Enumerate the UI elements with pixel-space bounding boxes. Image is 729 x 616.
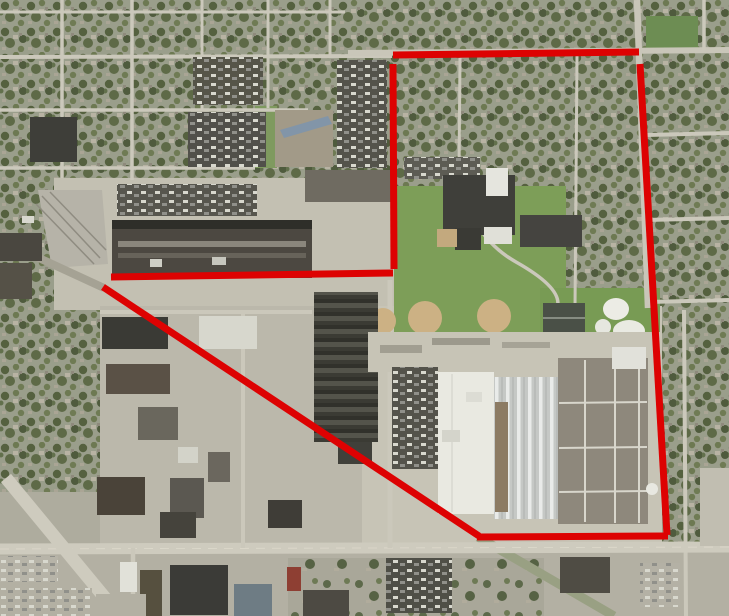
staging-clutter: [380, 345, 422, 353]
dark-building: [30, 117, 77, 162]
street: [459, 58, 460, 170]
parking-cars-texture: [0, 588, 92, 616]
white-factory-unit: [442, 430, 460, 442]
school-white-roof: [486, 168, 508, 196]
school-annex-white: [484, 227, 512, 244]
baseball-diamond: [477, 299, 511, 333]
baseball-diamond: [408, 301, 442, 335]
gray-factory-seam: [559, 491, 647, 492]
row-houses: [0, 263, 32, 299]
blue-roof-building: [234, 584, 272, 616]
street: [648, 300, 729, 302]
splash-pool: [603, 298, 629, 320]
commercial-building: [138, 407, 178, 440]
street: [684, 310, 686, 616]
red-roof-building: [287, 567, 301, 591]
parking-cars-texture: [386, 558, 452, 613]
parking-cars-texture: [337, 60, 387, 168]
parking-cars-texture: [392, 367, 438, 469]
white-canopy: [120, 562, 137, 592]
aerial-imagery: [0, 0, 729, 616]
playground: [437, 229, 457, 247]
parking-cars-texture: [640, 563, 680, 607]
row-houses: [0, 233, 42, 261]
factory-roof-vent: [212, 257, 226, 265]
factory-roof-band: [112, 220, 312, 229]
staging-clutter: [502, 342, 550, 348]
white-warehouse: [199, 316, 257, 349]
street: [0, 56, 392, 57]
commercial-building: [305, 170, 391, 202]
parking-lot: [96, 594, 146, 616]
boundary-top-edge: [393, 52, 639, 55]
white-dome: [646, 483, 658, 495]
street: [575, 56, 577, 308]
small-white-structure: [22, 216, 34, 223]
east-building: [520, 215, 582, 247]
white-factory-unit: [466, 392, 482, 402]
boundary-bottom-edge: [477, 536, 668, 537]
pavement-east-edge: [700, 468, 729, 546]
parking-cars-texture: [0, 556, 58, 582]
boundary-mid-horizontal: [111, 273, 393, 277]
satellite-imagery-base: [0, 0, 729, 616]
parking-cars-texture: [188, 112, 266, 167]
boundary-west-vertical: [393, 64, 394, 269]
school-south-wing: [455, 228, 481, 250]
gray-factory-building: [558, 358, 648, 524]
main-road-south: [0, 547, 729, 549]
factory-roof-vent: [150, 259, 162, 267]
factory-roof-monitor: [118, 241, 306, 247]
white-roof-section: [612, 347, 646, 369]
small-building: [160, 512, 196, 538]
storefront-building: [303, 590, 349, 616]
storefront-building: [170, 565, 228, 615]
parking-cars-texture: [193, 57, 263, 105]
staging-clutter: [432, 338, 490, 345]
brown-building: [97, 477, 145, 515]
park-northeast-patch: [646, 16, 698, 48]
small-building: [208, 452, 230, 482]
street: [646, 133, 729, 135]
striped-factory-brown-bay: [495, 402, 508, 512]
street: [646, 218, 729, 220]
residential-southwest: [0, 306, 102, 492]
parking-cars-texture: [117, 184, 257, 216]
industrial-building: [106, 364, 170, 394]
gray-factory-seam: [559, 402, 647, 403]
small-building: [268, 500, 302, 528]
gray-factory-seam: [559, 447, 647, 448]
dark-building: [560, 557, 610, 593]
satellite-map: Aerial satellite view of an urban indust…: [0, 0, 729, 616]
small-white-building: [178, 447, 198, 463]
